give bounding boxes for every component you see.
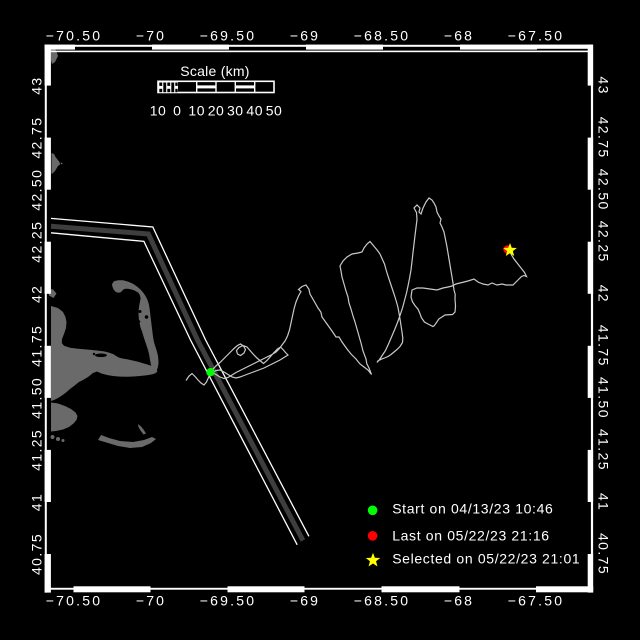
svg-text:Last on 05/22/23 21:16: Last on 05/22/23 21:16 [392,527,550,543]
svg-text:Selected on 05/22/23 21:01: Selected on 05/22/23 21:01 [392,551,580,567]
svg-text:41: 41 [28,493,44,511]
svg-text:40.75: 40.75 [28,533,44,575]
svg-text:Start on 04/13/23 10:46: Start on 04/13/23 10:46 [392,500,553,516]
svg-text:42.25: 42.25 [29,221,45,263]
svg-text:41: 41 [596,493,612,511]
svg-text:41.50: 41.50 [596,377,612,419]
svg-text:10: 10 [188,103,205,119]
svg-text:−68.50: −68.50 [354,593,410,609]
svg-text:41.50: 41.50 [28,377,44,419]
svg-text:41.75: 41.75 [28,325,44,367]
svg-text:42: 42 [28,285,44,303]
svg-text:−67.50: −67.50 [508,593,564,609]
svg-text:0: 0 [173,103,181,119]
svg-text:−70.50: −70.50 [46,593,102,609]
svg-text:42: 42 [596,285,612,303]
svg-text:40.75: 40.75 [596,533,612,575]
svg-text:−69: −69 [290,593,320,609]
svg-text:−69: −69 [290,28,320,44]
svg-text:Scale (km): Scale (km) [180,63,249,79]
svg-text:41.75: 41.75 [596,325,612,367]
svg-text:42.75: 42.75 [29,117,45,159]
svg-text:42.25: 42.25 [596,221,612,263]
svg-text:−70.50: −70.50 [46,28,102,44]
svg-text:50: 50 [266,103,283,119]
svg-text:10: 10 [150,103,167,119]
svg-text:41.25: 41.25 [28,429,44,471]
svg-text:−68.50: −68.50 [354,28,410,44]
svg-text:20: 20 [208,103,225,119]
svg-text:42.50: 42.50 [29,169,45,211]
svg-text:−67.50: −67.50 [508,28,564,44]
svg-text:−70: −70 [136,593,166,609]
svg-text:40: 40 [246,103,263,119]
svg-text:42.75: 42.75 [596,117,612,159]
svg-text:−68: −68 [444,28,474,44]
svg-text:43: 43 [29,76,45,94]
svg-text:30: 30 [227,103,244,119]
svg-text:43: 43 [596,76,612,94]
svg-text:41.25: 41.25 [596,429,612,471]
svg-text:−69.50: −69.50 [200,593,256,609]
svg-text:−69.50: −69.50 [200,28,256,44]
svg-text:42.50: 42.50 [596,169,612,211]
svg-text:−68: −68 [444,593,474,609]
svg-text:−70: −70 [136,28,166,44]
